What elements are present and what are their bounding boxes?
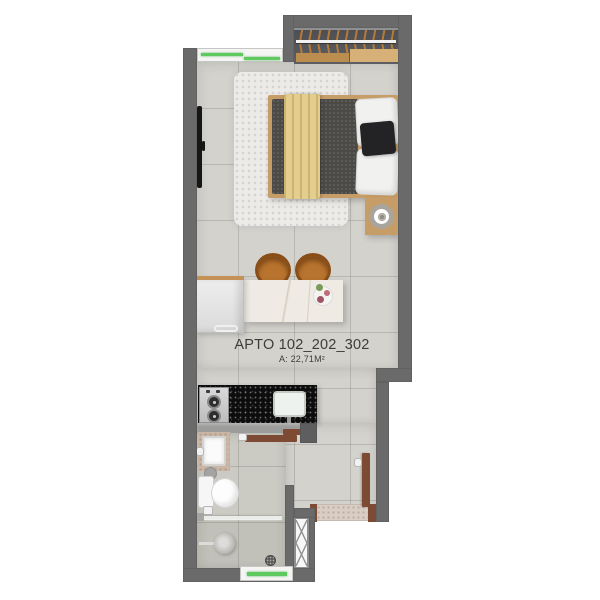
closet-top-wall: [283, 15, 412, 28]
entrance-door-handle: [354, 458, 362, 467]
fridge-top-trim: [196, 276, 244, 280]
kitchen-sink: [273, 391, 306, 417]
entrance-door: [362, 453, 370, 507]
bathroom-window-glass: [247, 572, 287, 576]
table-lamp: [369, 204, 394, 229]
door-pocket-wall: [300, 423, 317, 443]
area-label: A: 22,71M²: [202, 354, 402, 364]
right-wall-lower: [376, 382, 389, 522]
wardrobe-shelf-right: [350, 49, 398, 62]
bathroom-window: [240, 566, 293, 581]
closet-left-wall: [283, 15, 294, 62]
shower-glass-partition: [197, 516, 282, 519]
yellow-blanket: [284, 94, 320, 199]
bathroom-sink: [202, 436, 226, 466]
top-window: [197, 48, 283, 62]
decor-plant: [316, 284, 323, 291]
sliding-door-handle: [238, 433, 247, 441]
wardrobe-shelf-left: [296, 53, 349, 62]
sliding-door-panel: [245, 435, 297, 442]
apartment-label-group: APTO 102_202_302 A: 22,71M²: [202, 337, 402, 364]
shaft-hatch-icon: [296, 519, 307, 567]
decor-flower-dark: [317, 296, 324, 303]
burner-top: [207, 395, 221, 409]
shower-head: [214, 533, 235, 554]
nightstand: [365, 197, 398, 235]
refrigerator: [196, 277, 244, 333]
service-shaft: [294, 517, 309, 569]
floor-drain: [265, 555, 276, 566]
pillow-black: [360, 121, 397, 157]
hanger-rail: [296, 40, 396, 43]
toilet-paper-holder: [203, 506, 213, 515]
left-wall: [183, 48, 197, 582]
top-window-glass-left: [201, 53, 243, 56]
tv-mount: [202, 141, 205, 151]
bathroom-faucet: [196, 447, 204, 456]
pillow-bottom: [355, 148, 399, 195]
bed: [268, 95, 398, 198]
decor-flower-pink: [324, 290, 330, 296]
toilet-bowl: [211, 478, 239, 508]
right-wall-upper: [398, 15, 412, 370]
kitchen-island: [244, 280, 343, 322]
cooktop-knob: [216, 390, 220, 393]
cooktop-knob: [206, 390, 210, 393]
right-step-wall: [376, 368, 412, 382]
floorplan-canvas: APTO 102_202_302 A: 22,71M²: [0, 0, 600, 600]
cooktop: [199, 387, 229, 423]
apartment-label: APTO 102_202_302: [202, 337, 402, 353]
top-window-glass-right: [244, 57, 280, 60]
fridge-handle: [214, 325, 238, 332]
burner-bottom: [207, 409, 221, 423]
